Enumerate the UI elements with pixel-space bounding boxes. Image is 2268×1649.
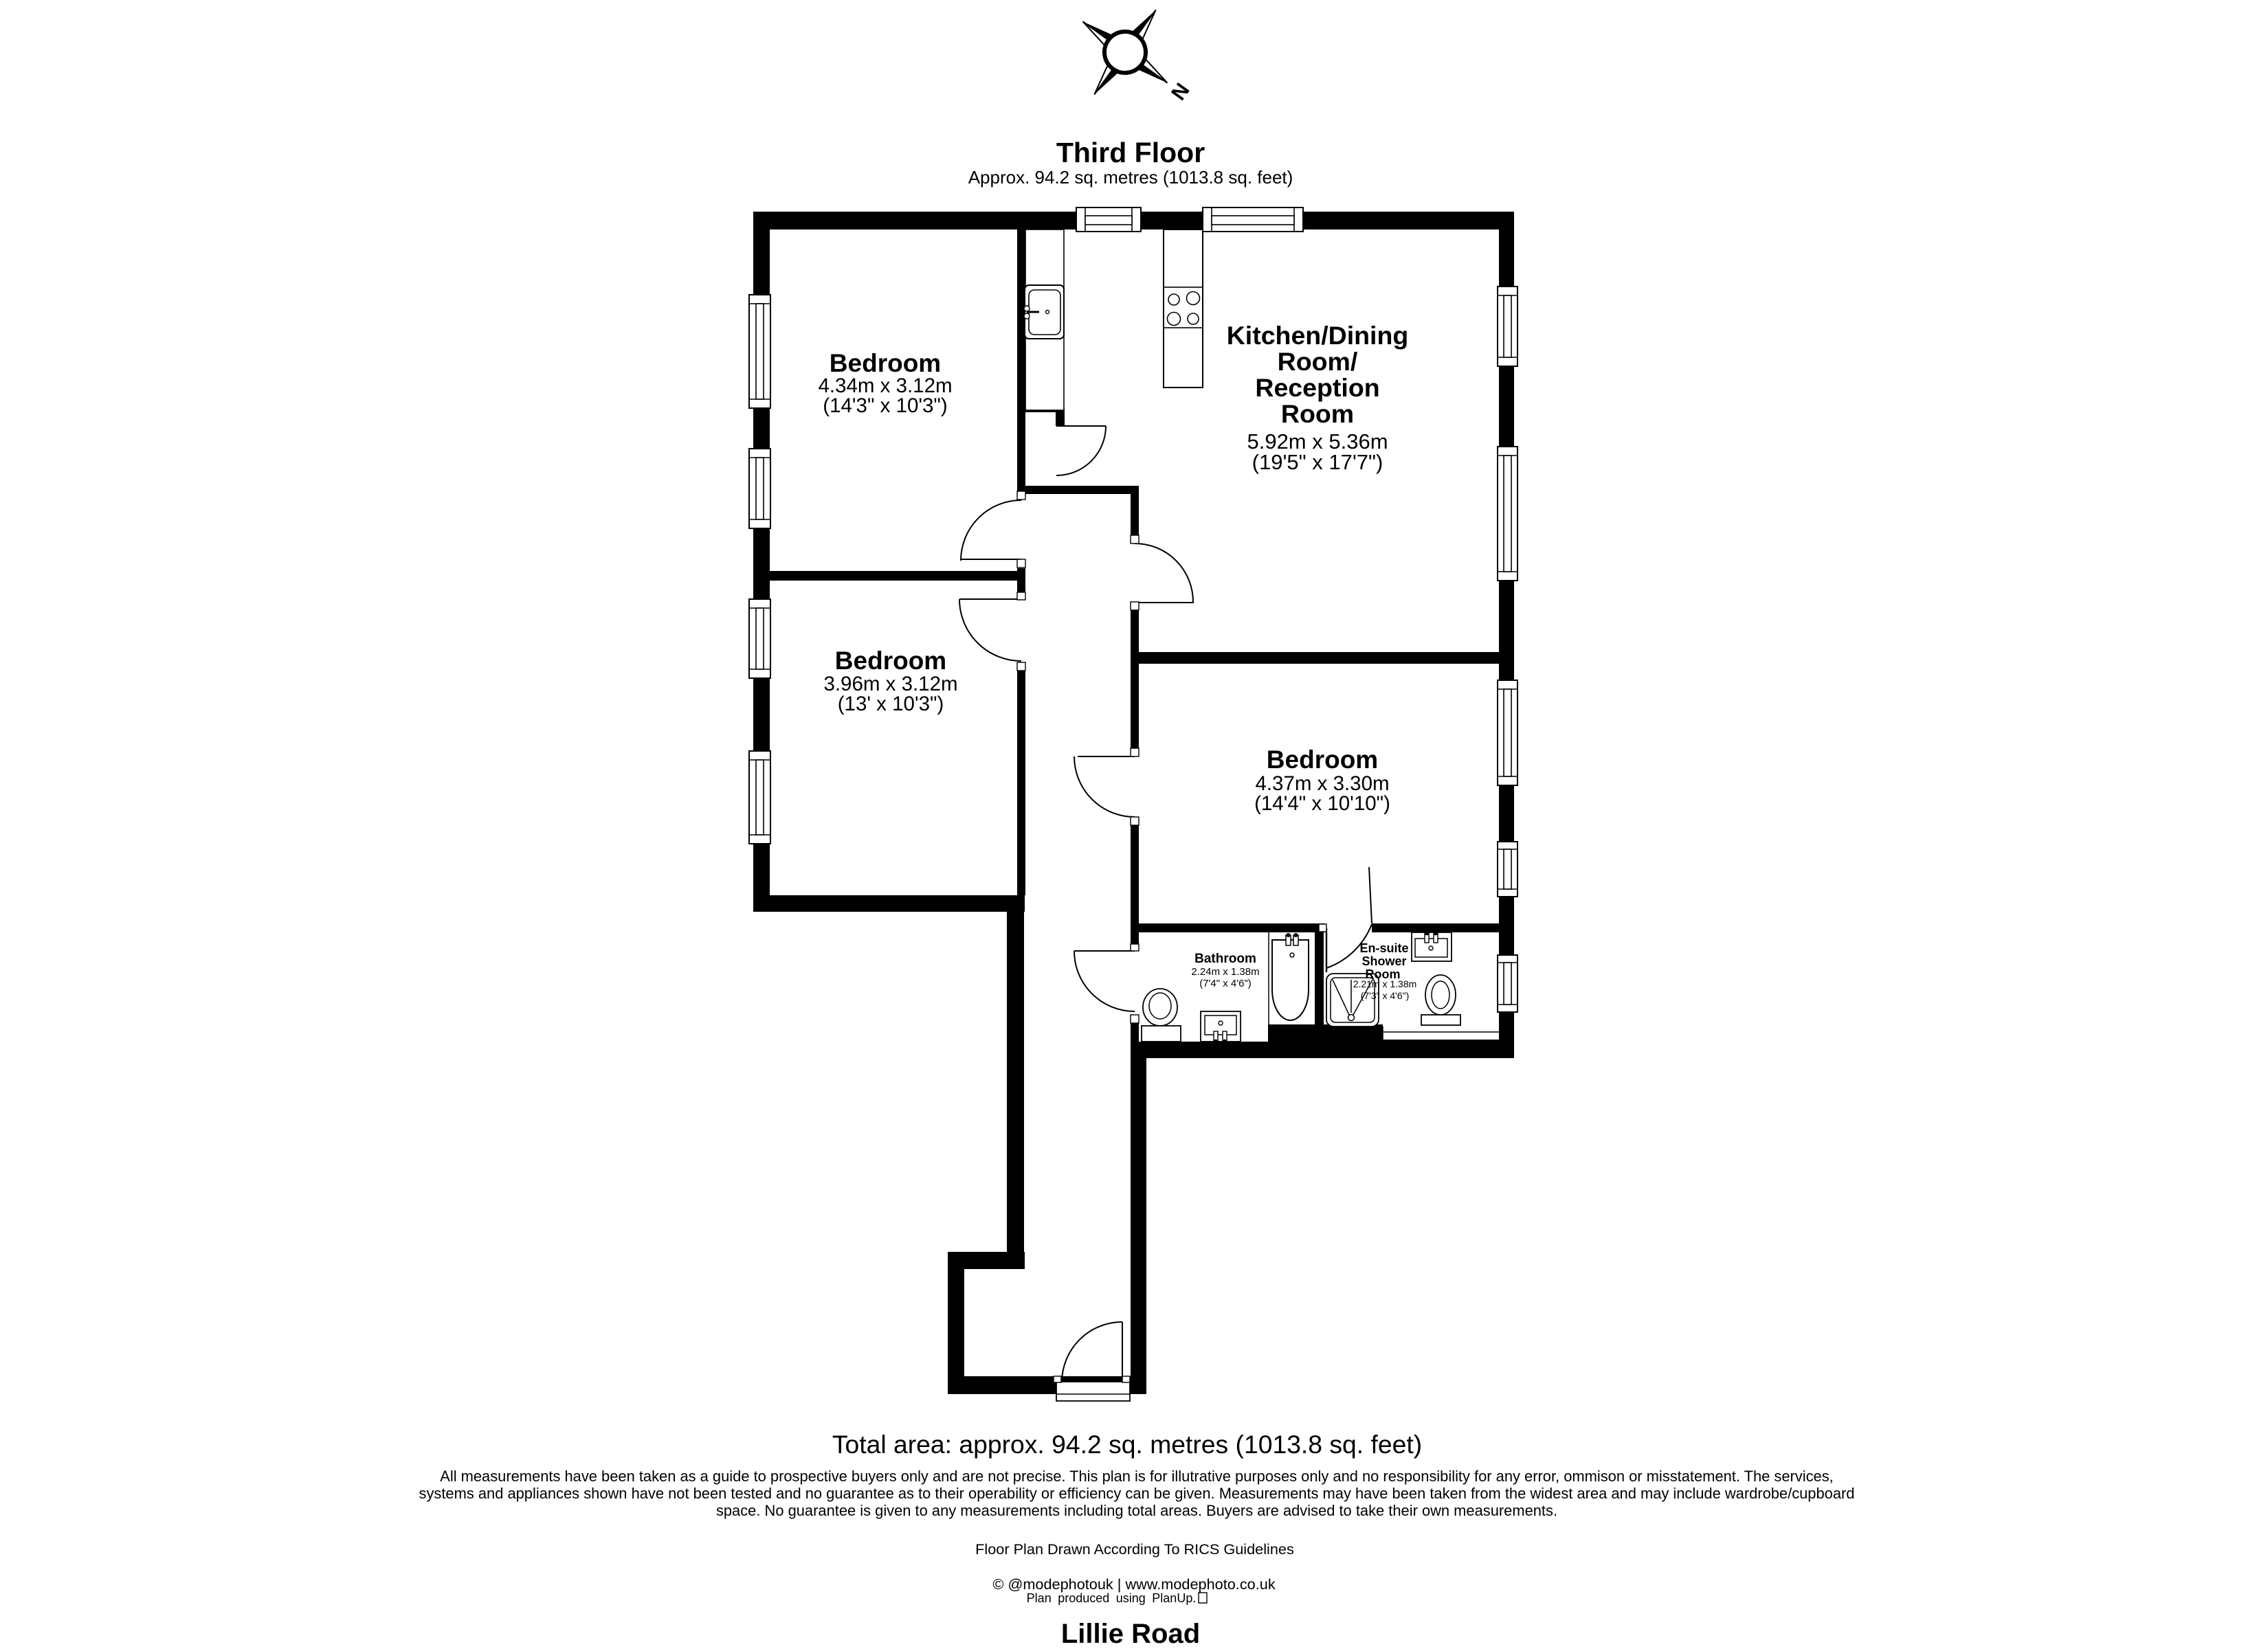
svg-text:Third Floor: Third Floor [1056, 137, 1205, 168]
svg-text:En-suite: En-suite [1359, 941, 1408, 955]
svg-text:2.24m x 1.38m: 2.24m x 1.38m [1191, 966, 1259, 978]
svg-text:Bedroom: Bedroom [1267, 745, 1378, 774]
svg-text:(7'3" x 4'6"): (7'3" x 4'6") [1361, 990, 1410, 1001]
svg-text:Plan produced using PlanUp.: Plan produced using PlanUp. [1027, 1591, 1197, 1605]
svg-text:Bathroom: Bathroom [1194, 952, 1256, 966]
svg-text:Lillie Road: Lillie Road [1061, 1619, 1200, 1649]
svg-text:(14'3" x 10'3"): (14'3" x 10'3") [823, 394, 947, 417]
svg-text:space. No guarantee is given t: space. No guarantee is given to any meas… [716, 1502, 1557, 1519]
svg-text:(13' x 10'3"): (13' x 10'3") [838, 693, 944, 715]
svg-text:© @modephotouk | www.modephoto: © @modephotouk | www.modephoto.co.uk [992, 1575, 1275, 1593]
svg-text:Reception: Reception [1255, 373, 1379, 402]
svg-text:Bedroom: Bedroom [835, 647, 946, 675]
svg-text:2.21m x 1.38m: 2.21m x 1.38m [1353, 978, 1417, 989]
svg-text:All measurements have been tak: All measurements have been taken as a gu… [440, 1468, 1834, 1485]
svg-text:Shower: Shower [1361, 954, 1406, 968]
svg-text:(14'4" x 10'10"): (14'4" x 10'10") [1254, 792, 1390, 815]
svg-text:systems and appliances shown h: systems and appliances shown have not be… [419, 1485, 1855, 1502]
svg-text:Total area: approx. 94.2 sq. m: Total area: approx. 94.2 sq. metres (101… [832, 1430, 1422, 1459]
svg-text:(19'5" x 17'7"): (19'5" x 17'7") [1252, 450, 1383, 474]
svg-text:Kitchen/Dining: Kitchen/Dining [1227, 321, 1409, 350]
svg-text:Floor Plan Drawn According To: Floor Plan Drawn According To RICS Guide… [975, 1540, 1294, 1558]
svg-text:Room: Room [1281, 399, 1354, 428]
svg-text:Bedroom: Bedroom [830, 349, 941, 377]
svg-text:(7'4" x 4'6"): (7'4" x 4'6") [1199, 978, 1252, 989]
svg-text:Approx. 94.2 sq. metres (1013.: Approx. 94.2 sq. metres (1013.8 sq. feet… [968, 167, 1293, 188]
svg-text:Room/: Room/ [1278, 347, 1358, 376]
